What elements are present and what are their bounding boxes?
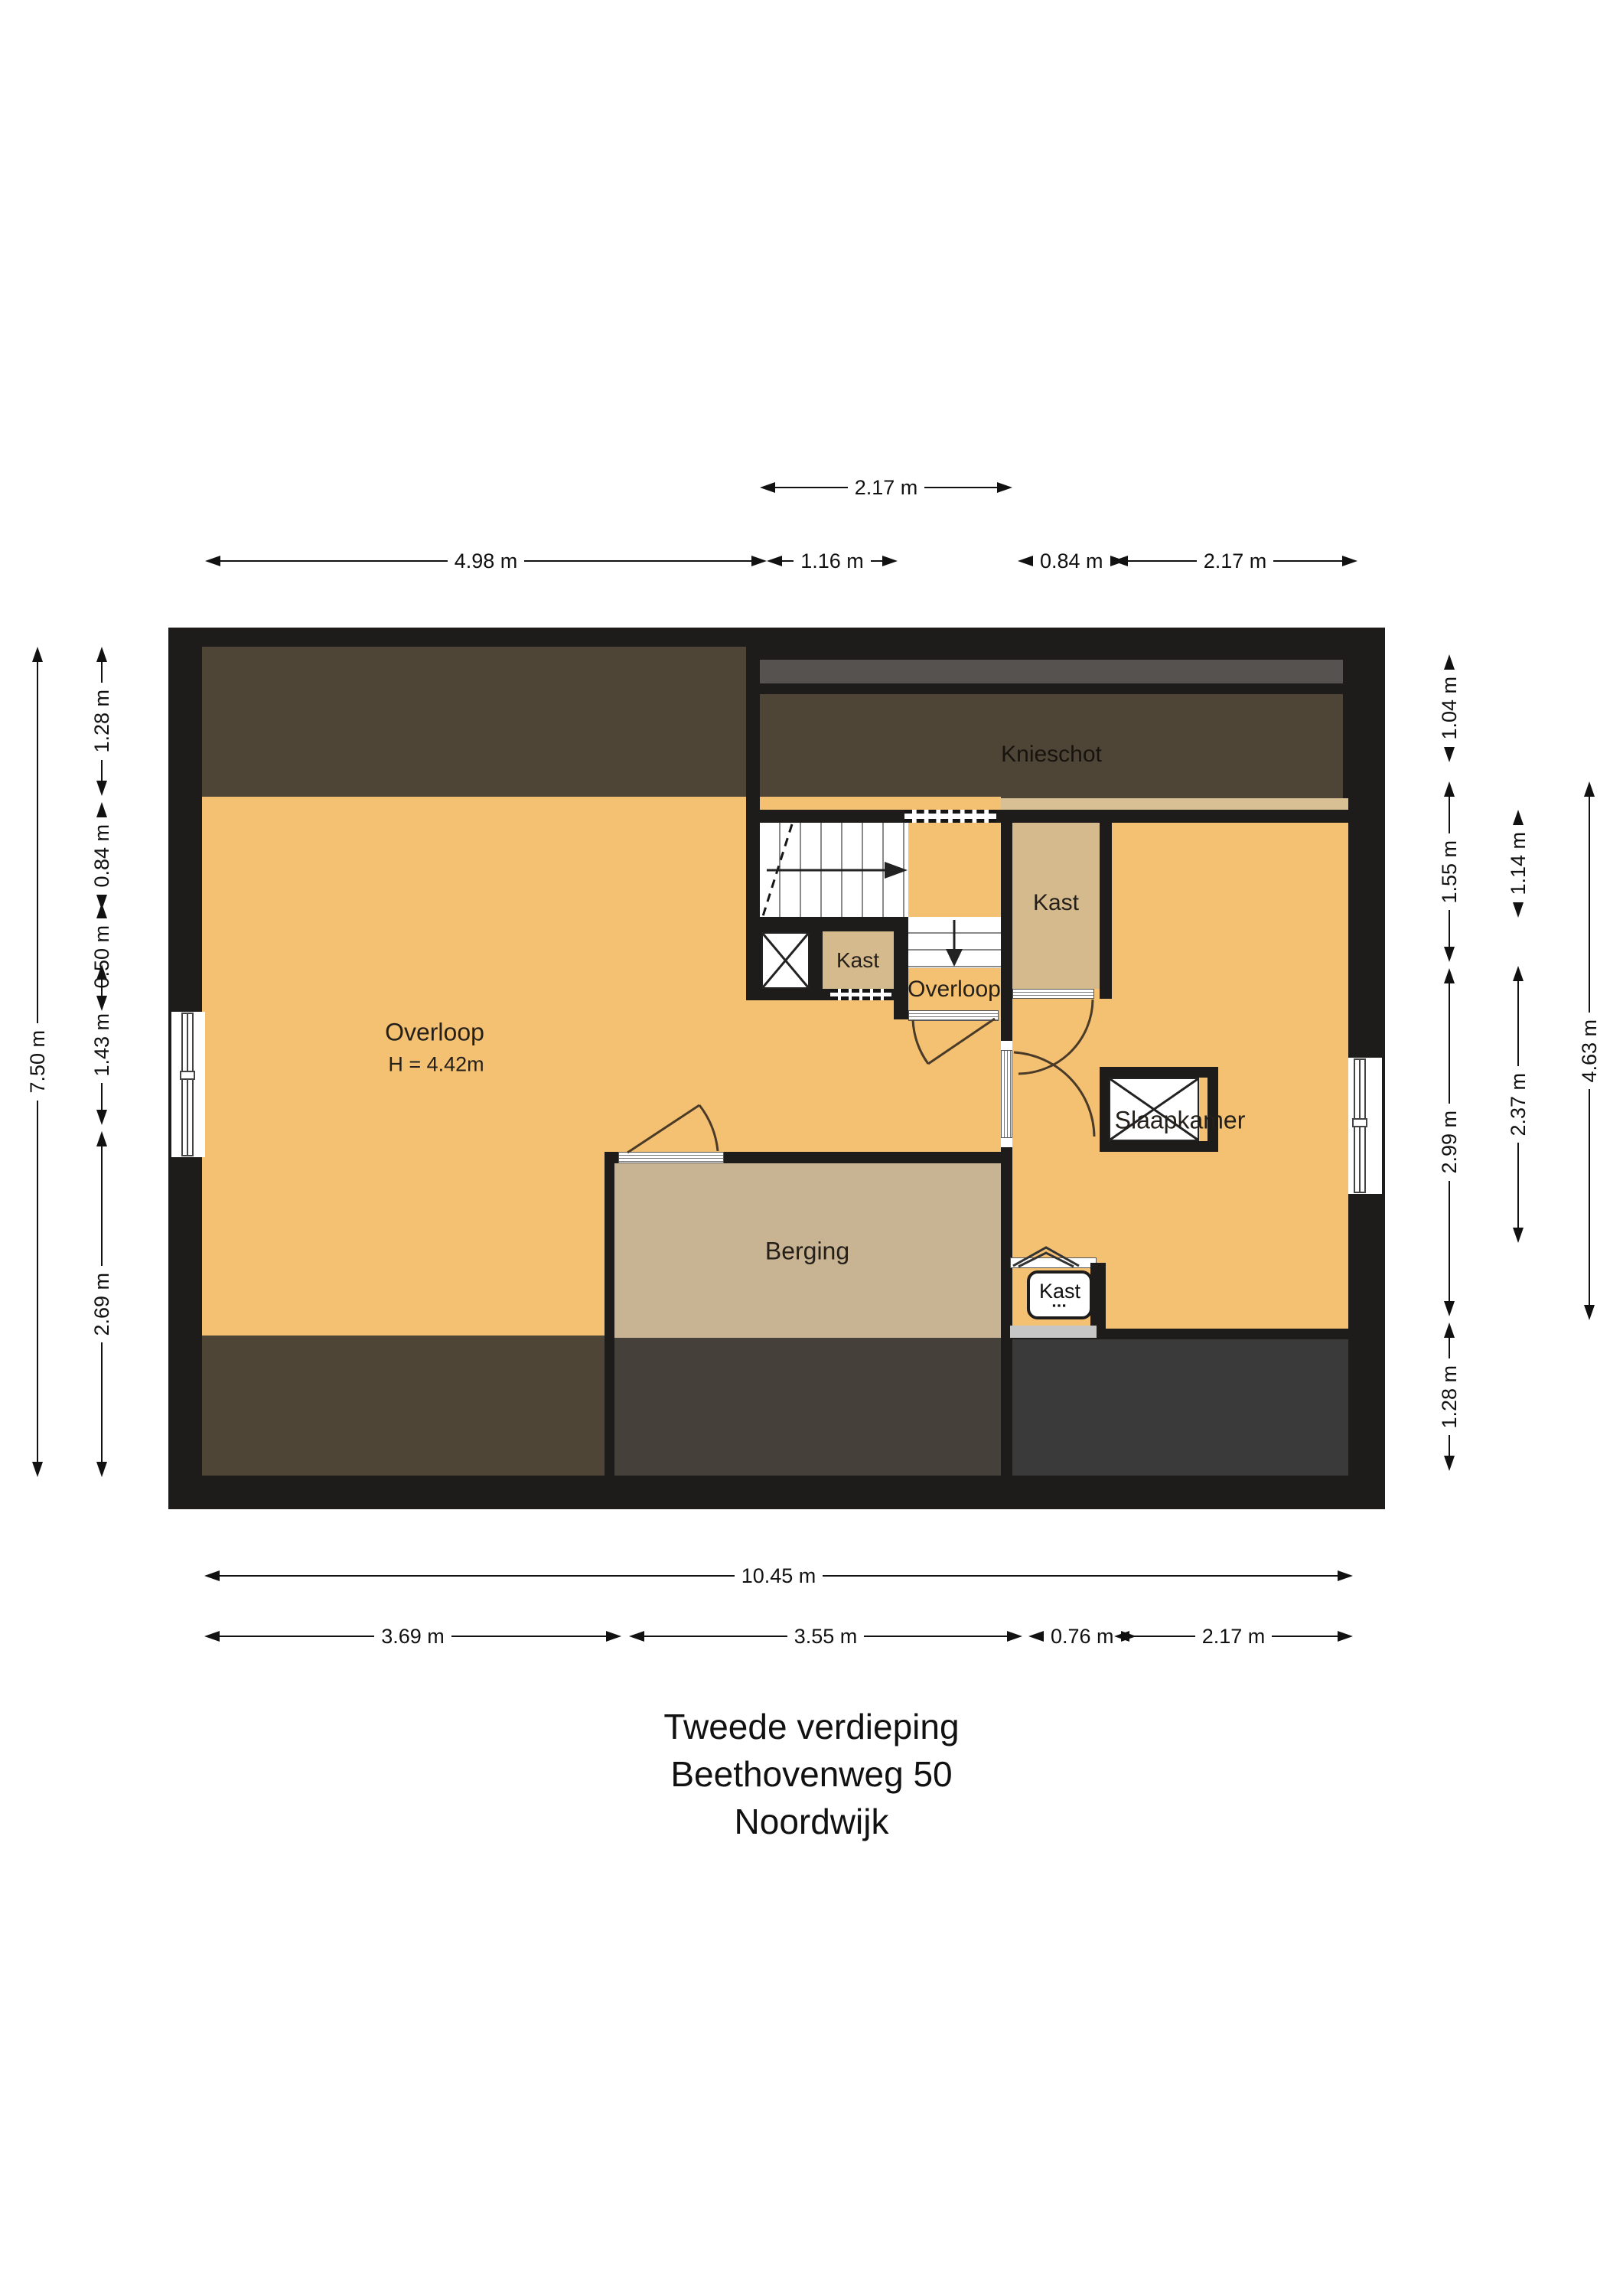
title-address: Beethovenweg 50: [0, 1750, 1623, 1798]
kast-upper-label: Kast: [1033, 890, 1079, 916]
title-block: Tweede verdieping Beethovenweg 50 Noordw…: [0, 1703, 1623, 1845]
dim-bottom-076: 0.76 m: [1028, 1626, 1108, 1647]
dim-left-269: 2.69 m: [91, 1131, 112, 1477]
dim-right-237: 2.37 m: [1507, 966, 1529, 1243]
overloop-main-height-label: H = 4.42m: [388, 1053, 484, 1077]
dim-left-128: 1.28 m: [91, 647, 112, 796]
dim-left-750: 7.50 m: [27, 647, 48, 1477]
dim-top-498: 4.98 m: [205, 550, 767, 572]
dim-top-stairbay: 2.17 m: [760, 477, 1012, 498]
window-right-glazing: [1353, 1059, 1367, 1192]
title-floor: Tweede verdieping: [0, 1703, 1623, 1750]
dim-bottom-369: 3.69 m: [204, 1626, 621, 1647]
dim-top-084: 0.84 m: [1018, 550, 1113, 572]
overloop-main-label: Overloop: [385, 1019, 484, 1047]
berging-door: [627, 1105, 718, 1153]
kast-stair-label: Kast: [836, 948, 879, 973]
overloop-small-label: Overloop: [908, 977, 1001, 1003]
stair-direction-right-icon: [767, 862, 908, 879]
dim-right-299: 2.99 m: [1439, 968, 1460, 1316]
slaapkamer-door: [1014, 1052, 1094, 1137]
kast-upper-door: [1018, 1000, 1093, 1074]
title-city: Noordwijk: [0, 1798, 1623, 1845]
dim-top-217: 2.17 m: [1113, 550, 1357, 572]
knieschot-label: Knieschot: [1001, 742, 1102, 768]
berging-label: Berging: [765, 1238, 849, 1266]
plan-annotations: [0, 0, 1623, 2296]
dim-right-104: 1.04 m: [1439, 654, 1460, 775]
dim-left-143: 1.43 m: [91, 964, 112, 1125]
stair-direction-down-icon: [946, 920, 963, 967]
dim-bottom-355: 3.55 m: [629, 1626, 1022, 1647]
duct-shaft-cross-icon: [763, 934, 808, 987]
dim-right-155: 1.55 m: [1439, 781, 1460, 962]
dim-left-084: 0.84 m: [91, 802, 112, 897]
dim-right-463: 4.63 m: [1579, 781, 1600, 1320]
folding-door-icon: [1013, 1247, 1079, 1267]
dim-right-114: 1.14 m: [1507, 810, 1529, 943]
floorplan-page: Kast ▪▪▪: [0, 0, 1623, 2296]
dim-bottom-217: 2.17 m: [1114, 1626, 1353, 1647]
dim-top-116: 1.16 m: [767, 550, 898, 572]
slaapkamer-label: Slaapkamer: [1115, 1107, 1246, 1135]
overloop-door: [913, 1019, 995, 1064]
dim-left-050: 0.50 m: [91, 903, 112, 958]
dim-bottom-1045: 10.45 m: [204, 1565, 1353, 1587]
dim-right-128: 1.28 m: [1439, 1322, 1460, 1471]
window-left-glazing: [181, 1013, 194, 1156]
